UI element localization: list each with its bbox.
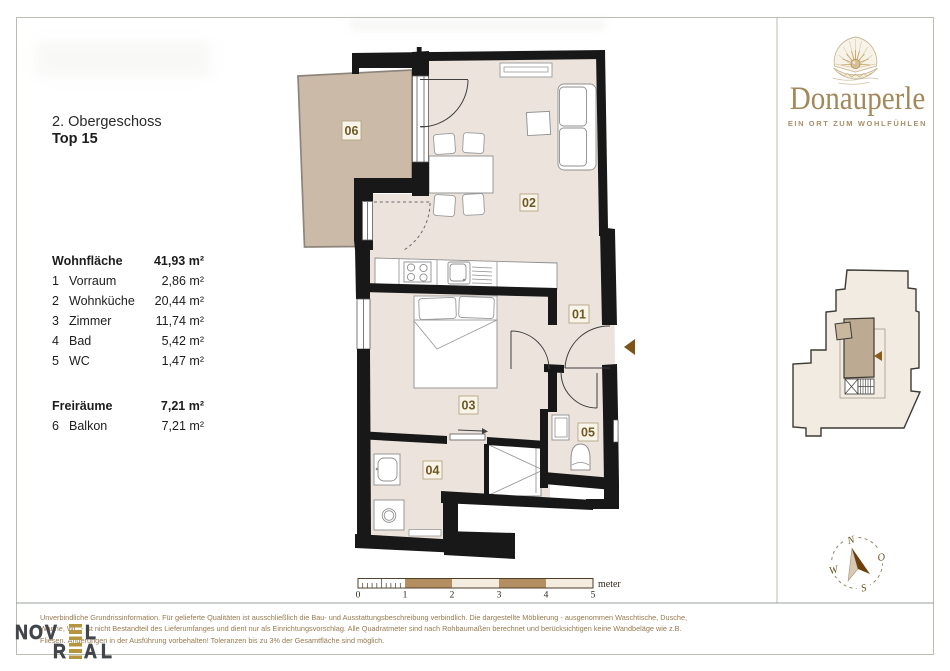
svg-text:05: 05 — [581, 426, 595, 440]
svg-text:01: 01 — [572, 308, 586, 322]
svg-text:1: 1 — [403, 591, 408, 601]
svg-text:3: 3 — [497, 591, 502, 601]
svg-text:04: 04 — [426, 464, 440, 478]
svg-text:0: 0 — [356, 591, 361, 601]
svg-text:4: 4 — [544, 591, 549, 601]
svg-text:2: 2 — [450, 591, 455, 601]
svg-text:meter: meter — [598, 579, 621, 590]
svg-text:02: 02 — [522, 196, 536, 210]
svg-text:03: 03 — [462, 399, 476, 413]
svg-text:06: 06 — [345, 124, 359, 138]
svg-text:5: 5 — [591, 591, 596, 601]
